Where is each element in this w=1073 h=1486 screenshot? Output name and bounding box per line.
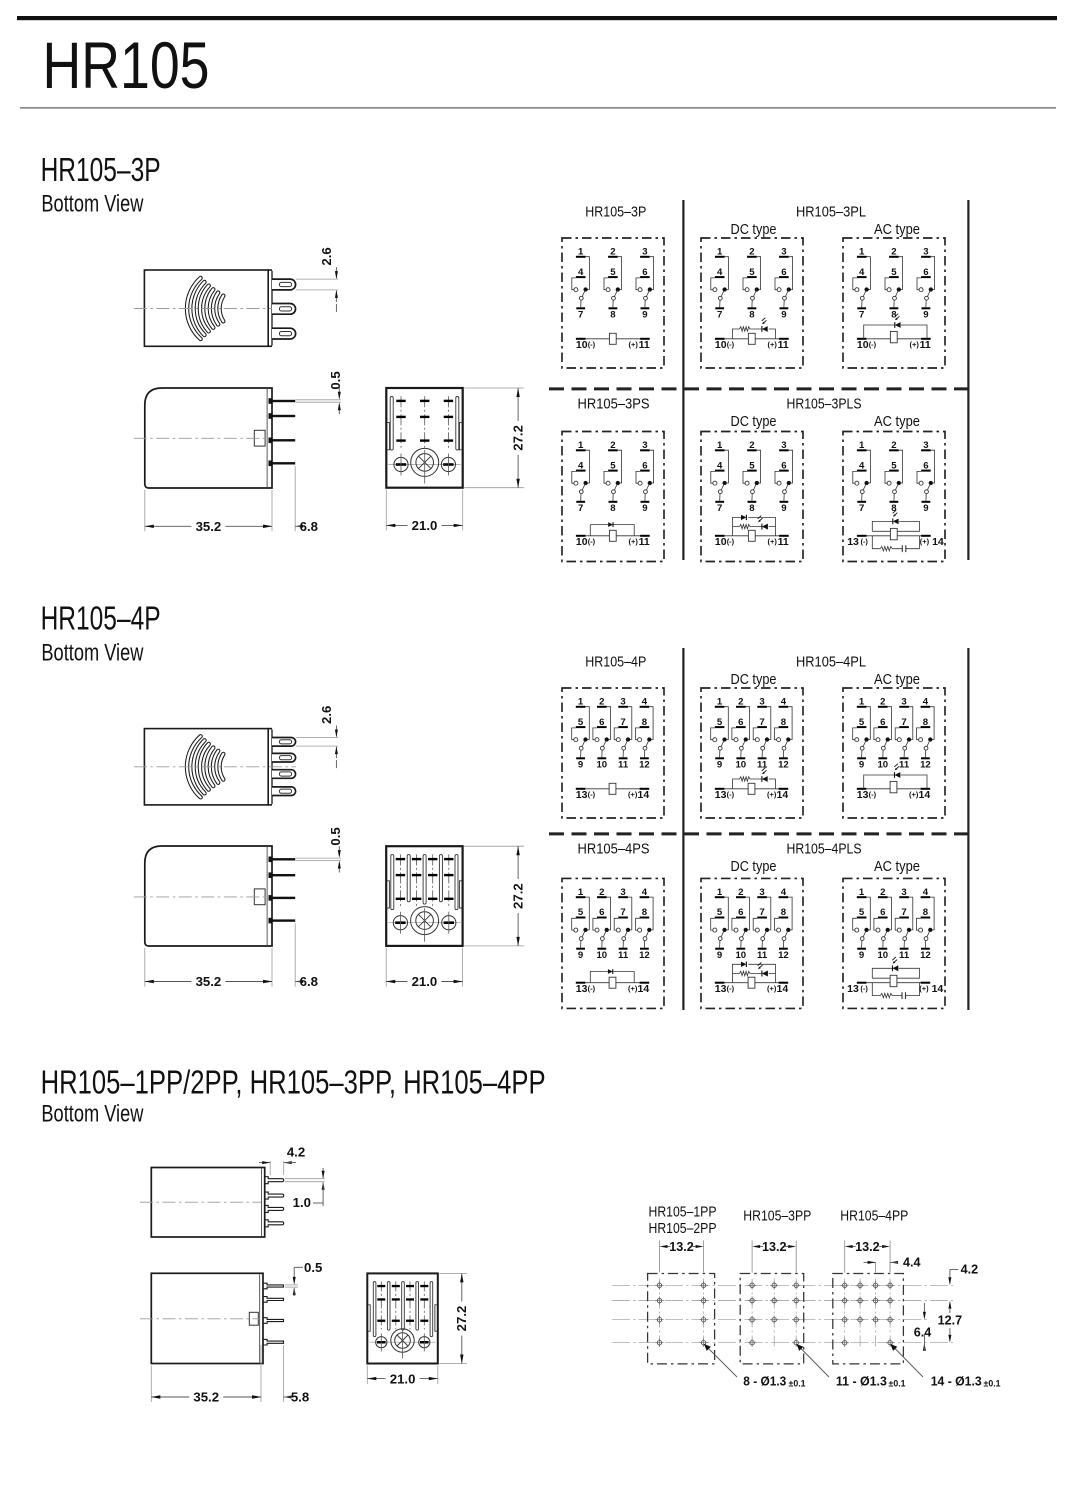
svg-text:5.8: 5.8 [291,1390,309,1405]
svg-text:12: 12 [778,760,789,771]
svg-text:(+): (+) [628,790,638,799]
svg-text:10: 10 [596,760,607,771]
svg-text:HR105–3PP: HR105–3PP [743,1209,811,1225]
svg-text:11: 11 [899,760,910,771]
svg-text:(-): (-) [727,340,735,349]
svg-text:13: 13 [715,983,727,995]
svg-text:27.2: 27.2 [510,425,525,451]
svg-text:27.2: 27.2 [510,883,525,909]
svg-text:8: 8 [749,503,755,514]
svg-text:11: 11 [778,536,789,548]
svg-text:HR105–3PL: HR105–3PL [796,205,866,221]
svg-text:Bottom View: Bottom View [41,639,143,666]
svg-text:Bottom View: Bottom View [41,1101,143,1128]
svg-text:8 - Ø1.3: 8 - Ø1.3 [743,1374,786,1388]
svg-text:AC type: AC type [874,222,920,238]
svg-text:(-): (-) [869,790,877,799]
svg-text:12: 12 [639,760,650,771]
svg-text:HR105–4PLS: HR105–4PLS [787,842,862,858]
svg-text:7: 7 [859,310,864,321]
svg-text:10: 10 [576,339,588,351]
svg-text:DC type: DC type [731,672,777,688]
svg-text:9: 9 [642,310,647,321]
svg-text:13.2: 13.2 [855,1240,880,1254]
svg-text:(+): (+) [909,790,919,799]
svg-text:11 - Ø1.3: 11 - Ø1.3 [836,1374,887,1388]
svg-text:8: 8 [610,503,616,514]
svg-text:6.4: 6.4 [914,1326,932,1340]
svg-text:1.0: 1.0 [293,1195,311,1210]
svg-text:12: 12 [920,950,931,961]
svg-text:10: 10 [715,339,727,351]
svg-text:(-): (-) [727,790,735,799]
svg-text:9: 9 [717,760,722,771]
svg-text:10: 10 [576,536,588,548]
svg-text:10: 10 [877,950,888,961]
svg-text:11: 11 [639,339,650,351]
svg-text:8: 8 [610,310,616,321]
svg-text:13: 13 [715,789,727,801]
svg-text:(+): (+) [919,984,929,993]
svg-text:14: 14 [919,789,931,801]
svg-text:8: 8 [749,310,755,321]
svg-text:13: 13 [576,789,588,801]
svg-text:(-): (-) [860,984,868,993]
svg-text:7: 7 [717,503,722,514]
svg-text:7: 7 [859,503,864,514]
svg-text:(-): (-) [588,340,596,349]
svg-text:11: 11 [639,536,650,548]
svg-text:4.2: 4.2 [287,1144,305,1159]
svg-text:10: 10 [735,950,746,961]
svg-text:HR105–4P: HR105–4P [585,655,646,671]
svg-text:9: 9 [578,760,583,771]
svg-text:11: 11 [618,760,629,771]
svg-text:13: 13 [857,789,869,801]
svg-text:AC type: AC type [874,859,920,875]
svg-text:(-): (-) [860,537,868,546]
svg-text:(+): (+) [628,984,638,993]
svg-text:4.2: 4.2 [961,1262,979,1276]
svg-text:21.0: 21.0 [390,1371,416,1386]
svg-text:(+): (+) [767,790,777,799]
svg-text:35.2: 35.2 [193,1390,219,1405]
svg-text:AC type: AC type [874,414,920,430]
svg-text:6.8: 6.8 [300,974,318,989]
svg-text:9: 9 [859,950,864,961]
svg-text:±0.1: ±0.1 [889,1379,906,1389]
svg-text:(-): (-) [869,340,877,349]
svg-text:DC type: DC type [731,859,777,875]
svg-text:13.2: 13.2 [762,1240,787,1254]
svg-text:11: 11 [757,760,768,771]
svg-text:0.5: 0.5 [304,1260,322,1275]
svg-text:6.8: 6.8 [300,519,318,534]
svg-text:(-): (-) [588,984,596,993]
svg-text:35.2: 35.2 [196,974,222,989]
svg-text:12.7: 12.7 [938,1314,963,1328]
svg-text:13: 13 [576,983,588,995]
svg-text:0.5: 0.5 [328,827,343,845]
svg-text:HR105–3P: HR105–3P [41,151,161,188]
svg-text:HR105–1PP/2PP, HR105–3PP, HR10: HR105–1PP/2PP, HR105–3PP, HR105–4PP [41,1063,546,1100]
svg-text:HR105–4PL: HR105–4PL [796,655,866,671]
svg-text:9: 9 [781,310,786,321]
svg-text:(+): (+) [768,537,778,546]
svg-text:14: 14 [638,983,650,995]
svg-text:14: 14 [638,789,650,801]
svg-text:13.2: 13.2 [669,1240,694,1254]
svg-text:DC type: DC type [731,222,777,238]
svg-text:14: 14 [932,983,944,995]
svg-text:11: 11 [899,950,910,961]
svg-text:10: 10 [857,339,869,351]
svg-text:AC type: AC type [874,672,920,688]
svg-text:11: 11 [757,950,768,961]
svg-text:14: 14 [777,983,789,995]
svg-text:HR105–1PP: HR105–1PP [649,1205,717,1221]
svg-text:27.2: 27.2 [454,1306,469,1332]
svg-text:2.6: 2.6 [319,247,334,265]
svg-text:HR105–2PP: HR105–2PP [649,1221,717,1237]
svg-text:35.2: 35.2 [196,519,222,534]
svg-text:14: 14 [777,789,789,801]
svg-text:9: 9 [859,760,864,771]
svg-text:21.0: 21.0 [412,518,438,533]
svg-text:10: 10 [735,760,746,771]
svg-text:10: 10 [715,536,727,548]
svg-text:4.4: 4.4 [903,1256,921,1270]
svg-text:9: 9 [923,310,928,321]
svg-text:12: 12 [920,760,931,771]
svg-text:10: 10 [877,760,888,771]
svg-text:(+): (+) [768,340,778,349]
svg-text:7: 7 [717,310,722,321]
svg-text:12: 12 [778,950,789,961]
svg-text:DC type: DC type [731,414,777,430]
svg-text:12: 12 [639,950,650,961]
svg-text:7: 7 [578,503,583,514]
svg-text:9: 9 [717,950,722,961]
svg-text:HR105–4P: HR105–4P [41,599,161,636]
svg-text:11: 11 [618,950,629,961]
svg-text:(-): (-) [588,790,596,799]
svg-text:(+): (+) [920,537,930,546]
svg-text:(-): (-) [727,984,735,993]
svg-text:(+): (+) [629,537,639,546]
svg-text:13: 13 [847,536,859,548]
svg-text:HR105: HR105 [43,28,210,102]
svg-text:(-): (-) [727,537,735,546]
svg-text:HR105–3PS: HR105–3PS [578,397,650,413]
svg-text:13: 13 [847,983,859,995]
svg-text:9: 9 [781,503,786,514]
svg-text:HR105–3PLS: HR105–3PLS [787,397,862,413]
svg-text:HR105–3P: HR105–3P [585,205,646,221]
svg-text:HR105–4PS: HR105–4PS [578,842,650,858]
svg-text:11: 11 [920,339,931,351]
svg-text:(+): (+) [910,340,920,349]
svg-text:9: 9 [923,503,928,514]
svg-text:2.6: 2.6 [319,706,334,724]
svg-text:HR105–4PP: HR105–4PP [840,1209,908,1225]
svg-text:9: 9 [642,503,647,514]
svg-text:(-): (-) [588,537,596,546]
svg-text:11: 11 [778,339,789,351]
svg-text:10: 10 [596,950,607,961]
svg-text:14 - Ø1.3: 14 - Ø1.3 [931,1374,982,1388]
svg-text:7: 7 [578,310,583,321]
svg-text:(+): (+) [629,340,639,349]
svg-text:(+): (+) [767,984,777,993]
svg-text:Bottom View: Bottom View [41,190,143,217]
svg-text:±0.1: ±0.1 [984,1379,1001,1389]
svg-text:±0.1: ±0.1 [789,1379,806,1389]
svg-text:21.0: 21.0 [412,974,438,989]
svg-text:14: 14 [932,536,944,548]
svg-text:0.5: 0.5 [328,371,343,389]
svg-text:9: 9 [578,950,583,961]
